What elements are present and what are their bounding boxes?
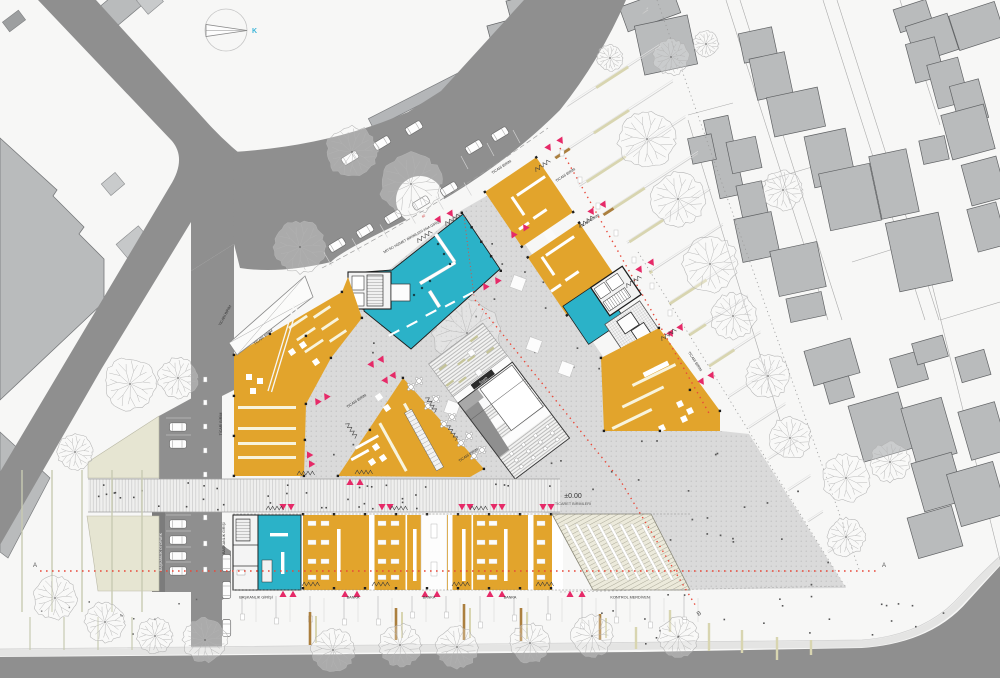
svg-text:±0.00: ±0.00 <box>564 493 582 500</box>
svg-text:KONTROL MERDİVEN: KONTROL MERDİVEN <box>610 595 650 600</box>
svg-text:BANKA: BANKA <box>423 596 436 600</box>
svg-text:TİCARET BİRİMLERİ: TİCARET BİRİMLERİ <box>555 501 591 506</box>
svg-text:BAŞKANLIK GİRİŞİ: BAŞKANLIK GİRİŞİ <box>239 595 273 600</box>
svg-text:BANKA: BANKA <box>504 596 517 600</box>
svg-text:A: A <box>33 563 37 569</box>
svg-text:A: A <box>882 563 886 569</box>
svg-text:BAŞKANLIK OTOPARK: BAŞKANLIK OTOPARK <box>159 532 163 571</box>
svg-text:TİCARİ BİRİM: TİCARİ BİRİM <box>218 413 223 436</box>
svg-text:K: K <box>252 28 257 35</box>
svg-text:BAŞKANLIK GİRİŞİ: BAŞKANLIK GİRİŞİ <box>221 522 226 554</box>
svg-text:BANKA: BANKA <box>347 596 360 600</box>
